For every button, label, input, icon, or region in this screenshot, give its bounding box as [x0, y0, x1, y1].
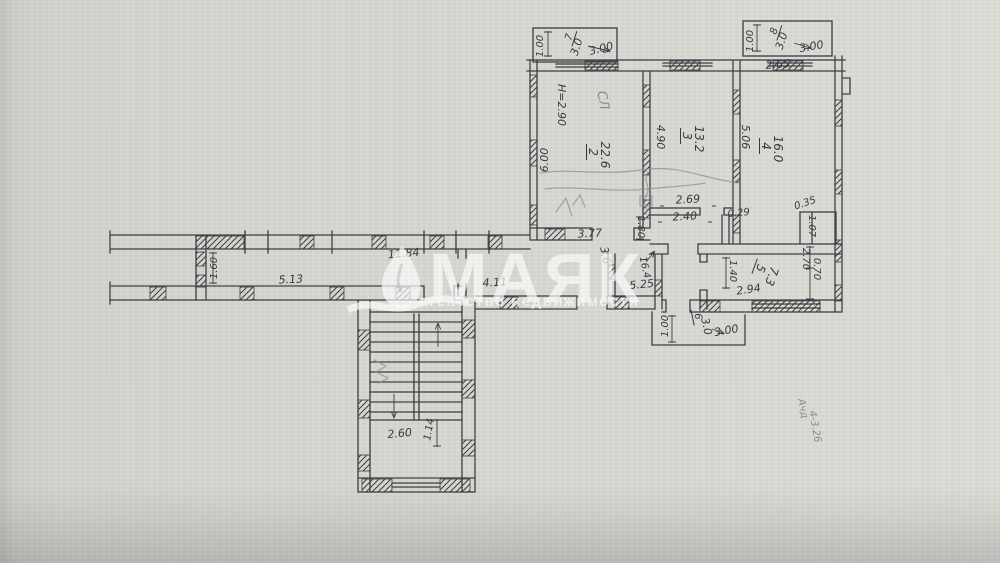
- svg-text:2.65: 2.65: [765, 57, 790, 72]
- svg-text:1.40: 1.40: [727, 260, 738, 282]
- floor-plan-canvas: 1.0073.03.001.0083.03.002.65H=2.90СЛ6.00…: [0, 0, 1000, 563]
- svg-text:2.94: 2.94: [735, 281, 761, 297]
- svg-text:1.07: 1.07: [806, 215, 817, 238]
- svg-text:5.06: 5.06: [739, 125, 752, 150]
- labels-layer: 1.0073.03.001.0083.03.002.65H=2.90СЛ6.00…: [209, 22, 825, 443]
- svg-text:1.00: 1.00: [745, 30, 756, 52]
- dimension-label: H=2.90: [555, 84, 568, 126]
- svg-text:3: 3: [680, 132, 694, 140]
- dimension-label: 1.80: [635, 216, 646, 238]
- pencil-squiggle: [540, 169, 738, 183]
- svg-text:1.00: 1.00: [535, 35, 546, 57]
- dimension-label: 1.07: [806, 215, 817, 238]
- svg-text:4.90: 4.90: [654, 125, 667, 150]
- svg-text:0.70: 0.70: [811, 258, 822, 280]
- svg-text:2.60: 2.60: [387, 426, 413, 441]
- dimension-label: 3.00: [588, 39, 615, 58]
- svg-text:5.13: 5.13: [278, 272, 303, 286]
- dimension-label: 5.06: [739, 125, 752, 150]
- dimension-label: 2: [586, 144, 600, 160]
- pencil-note: СЛ: [593, 90, 611, 111]
- svg-text:0.35: 0.35: [793, 195, 818, 212]
- svg-text:3.00: 3.00: [798, 38, 824, 55]
- dimension-label: 6.00: [538, 148, 551, 173]
- svg-text:H=2.90: H=2.90: [555, 84, 568, 126]
- svg-text:2.40: 2.40: [672, 209, 697, 223]
- svg-text:3.00: 3.00: [713, 322, 739, 339]
- dimension-label: 4: [759, 138, 773, 154]
- dimension-label: 1.00: [535, 35, 546, 57]
- svg-text:СЛ: СЛ: [593, 90, 611, 111]
- dimension-label: 0.70: [811, 258, 822, 280]
- dimension-label: 22.6: [598, 142, 612, 169]
- pencil-squiggle: [545, 183, 705, 190]
- handwritten-note: 4-3.26: [806, 410, 822, 444]
- pencil-checkmark: [556, 195, 585, 216]
- svg-text:1.14: 1.14: [422, 418, 437, 442]
- scanned-floor-plan: 1.0073.03.001.0083.03.002.65H=2.90СЛ6.00…: [0, 0, 1000, 563]
- svg-text:3.00: 3.00: [588, 39, 615, 58]
- svg-text:4: 4: [759, 142, 773, 150]
- dimension-label: 16.0: [771, 136, 785, 163]
- dimension-label: 3.00: [798, 38, 824, 55]
- dimension-label: 3.00: [713, 322, 739, 339]
- svg-text:16.0: 16.0: [771, 136, 785, 163]
- dimension-label: 3: [680, 128, 694, 144]
- svg-text:3.0: 3.0: [698, 316, 714, 336]
- dimension-label: 4.90: [654, 125, 667, 150]
- dimension-label: 1.40: [727, 260, 738, 282]
- svg-text:0.29: 0.29: [727, 207, 750, 220]
- svg-text:22.6: 22.6: [598, 142, 612, 169]
- dimension-label: 3.0: [698, 316, 714, 336]
- stair-treads: [370, 322, 462, 420]
- svg-text:4-3.26: 4-3.26: [806, 410, 822, 444]
- dimension-label: 2.60: [387, 426, 413, 441]
- dimension-label: 2.65: [765, 57, 790, 72]
- svg-text:2.69: 2.69: [675, 192, 700, 206]
- dimension-label: 1.60: [209, 257, 220, 279]
- dimension-label: 13.2: [692, 126, 706, 153]
- svg-text:1.80: 1.80: [635, 216, 646, 238]
- dimension-label: 1.00: [660, 315, 671, 337]
- svg-text:1.60: 1.60: [209, 257, 220, 279]
- dimension-label: 5.13: [278, 272, 303, 286]
- dimension-label: 2.70: [800, 248, 811, 270]
- dimension-label: 2.69: [675, 192, 700, 206]
- dimension-label: 0.35: [793, 195, 818, 212]
- dimension-label: 1.00: [745, 30, 756, 52]
- svg-text:13.2: 13.2: [692, 126, 706, 153]
- dimension-label: 1.14: [422, 418, 437, 442]
- svg-text:2.70: 2.70: [800, 248, 811, 270]
- svg-text:6.00: 6.00: [538, 148, 551, 173]
- svg-text:2: 2: [586, 148, 600, 156]
- watermark-subtitle: агентство недвижимости: [419, 293, 639, 310]
- dimension-label: 2.40: [672, 209, 697, 223]
- svg-text:1.00: 1.00: [660, 315, 671, 337]
- dimension-label: 2.94: [735, 281, 761, 297]
- dimension-label: 0.29: [727, 207, 750, 220]
